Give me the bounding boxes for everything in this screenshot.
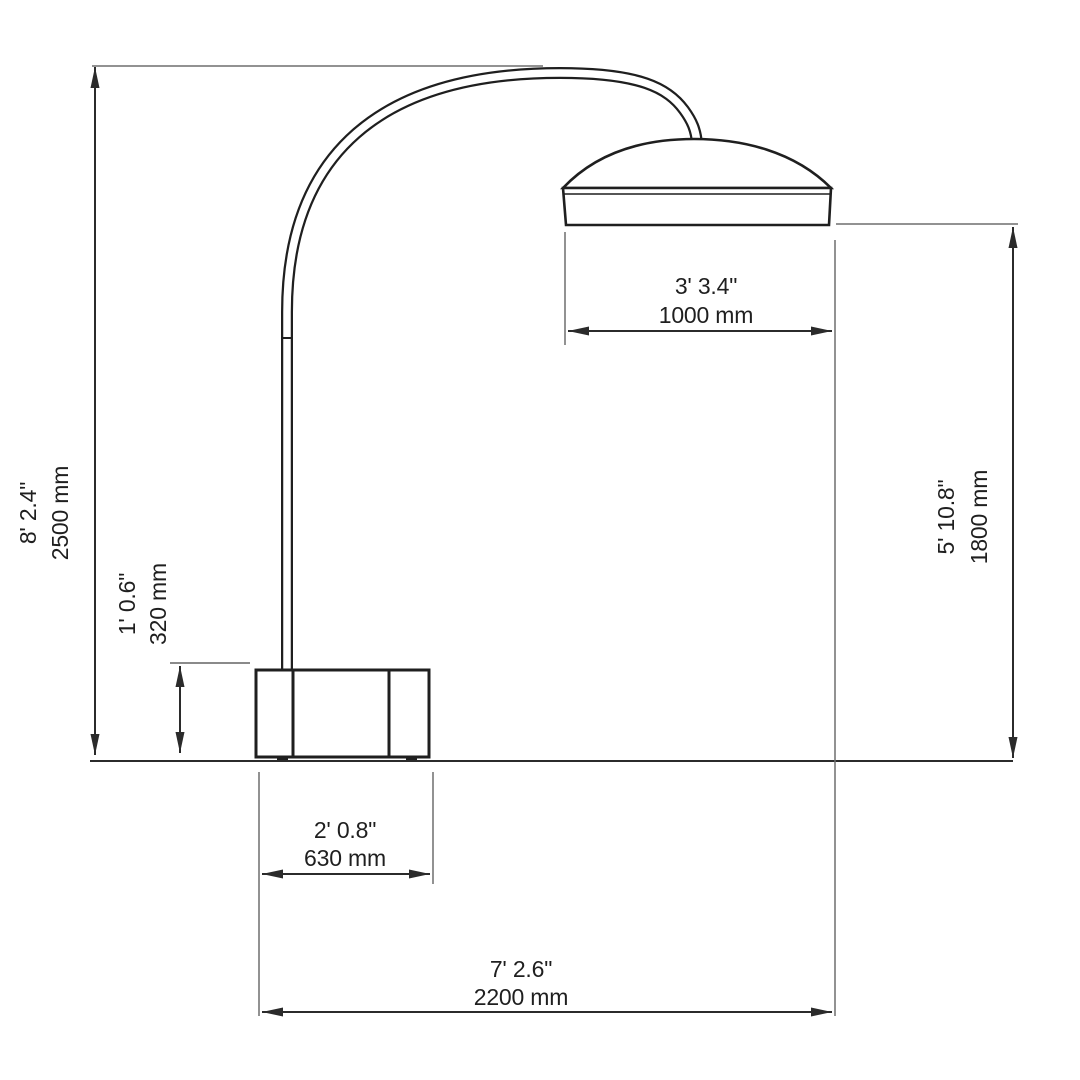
dimension-total-height: 8' 2.4" 2500 mm <box>15 66 543 755</box>
dimension-base-width: 2' 0.8" 630 mm <box>259 772 433 1016</box>
dimension-base-height: 1' 0.6" 320 mm <box>114 563 250 753</box>
dimension-shade-width: 3' 3.4" 1000 mm <box>565 232 835 1016</box>
dimension-label-imperial: 8' 2.4" <box>15 482 41 544</box>
dimension-label-imperial: 1' 0.6" <box>114 573 140 635</box>
dimension-label-metric: 1800 mm <box>966 470 992 564</box>
dimension-label-metric: 630 mm <box>304 845 386 871</box>
dimension-label-imperial: 2' 0.8" <box>314 817 376 843</box>
lamp-base <box>256 670 429 761</box>
dimension-clearance-height: 5' 10.8" 1800 mm <box>836 224 1018 758</box>
dimension-label-imperial: 3' 3.4" <box>675 273 737 299</box>
arc-lamp-dimension-diagram: 8' 2.4" 2500 mm 1' 0.6" 320 mm 5' 10.8" … <box>0 0 1080 1080</box>
dimension-drawing-page: 8' 2.4" 2500 mm 1' 0.6" 320 mm 5' 10.8" … <box>0 0 1080 1080</box>
dimension-total-width: 7' 2.6" 2200 mm <box>262 956 832 1012</box>
floor-lamp-drawing <box>90 73 1013 761</box>
lamp-shade <box>563 139 831 225</box>
shade-dome <box>563 139 831 188</box>
dimension-label-metric: 1000 mm <box>659 302 753 328</box>
dimension-label-metric: 2500 mm <box>47 466 73 560</box>
dimension-label-metric: 320 mm <box>145 563 171 645</box>
dimension-label-imperial: 7' 2.6" <box>490 956 552 982</box>
dimension-label-imperial: 5' 10.8" <box>933 480 959 555</box>
dimension-label-metric: 2200 mm <box>474 984 568 1010</box>
